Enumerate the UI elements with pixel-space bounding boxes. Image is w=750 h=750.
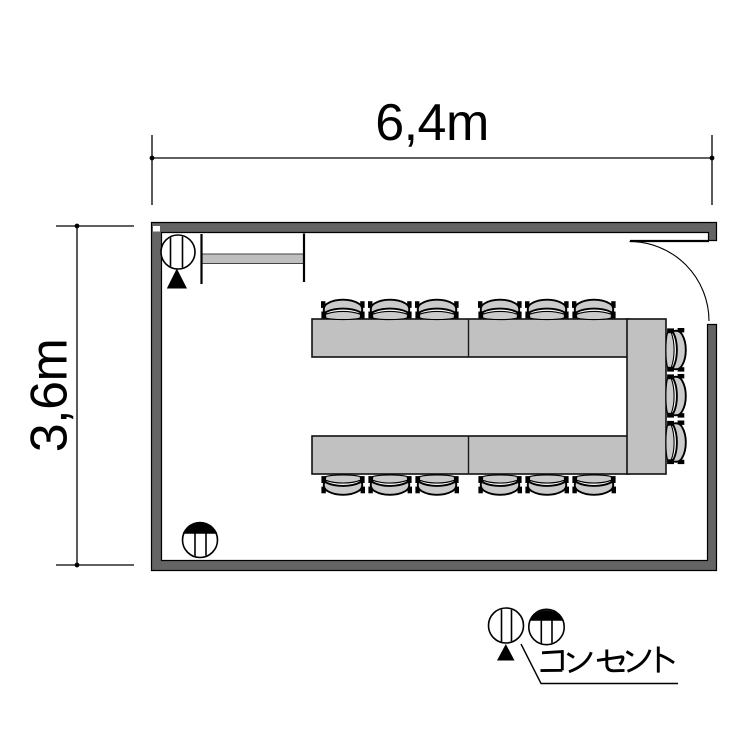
svg-text:6,4m: 6,4m — [375, 94, 489, 152]
svg-text:3,6m: 3,6m — [20, 339, 78, 453]
